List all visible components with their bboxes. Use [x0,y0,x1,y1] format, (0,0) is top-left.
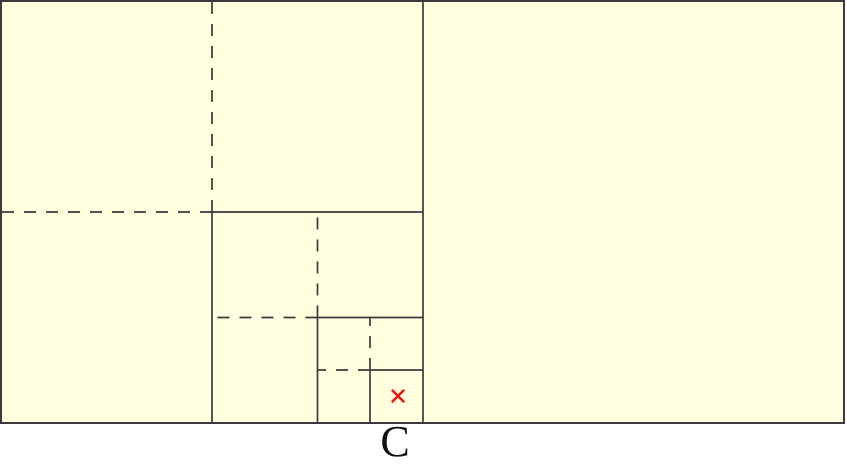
figure-canvas: C [0,0,847,464]
point-label: C [380,420,409,464]
nested-squares-diagram [0,0,847,464]
